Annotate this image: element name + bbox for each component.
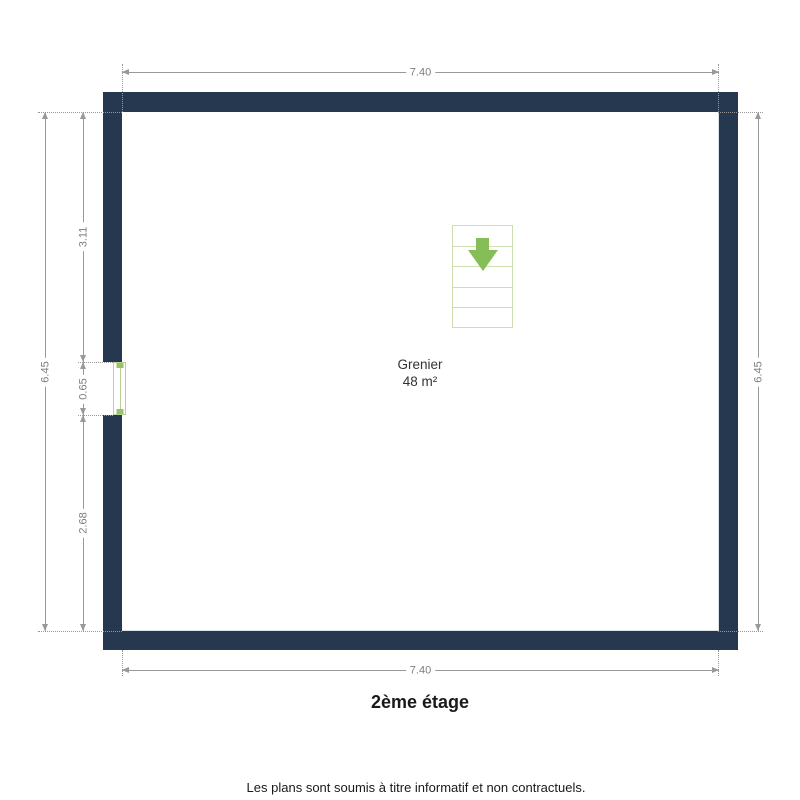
dim-arrow xyxy=(122,69,129,75)
wall-left-lower xyxy=(103,415,122,650)
stairs-down-arrow-icon xyxy=(468,238,498,271)
room-label: Grenier 48 m² xyxy=(397,356,442,390)
dimension-label: 2.68 xyxy=(79,508,90,537)
dimension-label: 3.11 xyxy=(79,223,90,252)
dimension-label: 7.40 xyxy=(406,666,435,677)
dim-arrow xyxy=(80,112,86,119)
dim-arrow xyxy=(712,69,719,75)
room-area: 48 m² xyxy=(397,373,442,390)
dim-arrow xyxy=(42,112,48,119)
wall-left-upper xyxy=(103,92,122,362)
wall-bottom xyxy=(103,631,738,650)
stair-tread-line xyxy=(453,287,512,288)
dimension-width-top: 7.40 xyxy=(122,72,719,73)
window-frame-tick-bottom xyxy=(116,409,123,414)
extension-line xyxy=(38,631,122,632)
dimension-label: 6.45 xyxy=(754,357,765,386)
dim-arrow xyxy=(80,408,86,415)
floor-title: 2ème étage xyxy=(371,692,469,713)
extension-line xyxy=(718,631,763,632)
dimension-left-upper: 3.11 xyxy=(83,112,84,362)
floor-plan-canvas: 7.40 7.40 6.45 6.45 3.11 0.65 2.68 Greni… xyxy=(0,0,800,800)
dim-arrow xyxy=(80,415,86,422)
dim-arrow xyxy=(122,667,129,673)
dimension-label: 0.65 xyxy=(79,374,90,403)
window xyxy=(113,362,126,415)
dim-arrow xyxy=(755,112,761,119)
stair-tread-line xyxy=(453,307,512,308)
room-name: Grenier xyxy=(397,356,442,373)
dim-arrow xyxy=(712,667,719,673)
dimension-label: 6.45 xyxy=(41,357,52,386)
dim-arrow xyxy=(80,624,86,631)
dimension-label: 7.40 xyxy=(406,68,435,79)
disclaimer-text: Les plans sont soumis à titre informatif… xyxy=(247,780,586,795)
window-frame-tick-top xyxy=(116,363,123,368)
dimension-left-window: 0.65 xyxy=(83,362,84,415)
dimension-left-lower: 2.68 xyxy=(83,415,84,631)
window-glass-line xyxy=(120,363,121,414)
dim-arrow xyxy=(755,624,761,631)
wall-right xyxy=(719,92,738,650)
dimension-height-right: 6.45 xyxy=(758,112,759,631)
dim-arrow xyxy=(80,362,86,369)
dimension-height-left: 6.45 xyxy=(45,112,46,631)
wall-top xyxy=(103,92,738,112)
dimension-width-bottom: 7.40 xyxy=(122,670,719,671)
dim-arrow xyxy=(80,355,86,362)
dim-arrow xyxy=(42,624,48,631)
staircase xyxy=(452,225,513,328)
